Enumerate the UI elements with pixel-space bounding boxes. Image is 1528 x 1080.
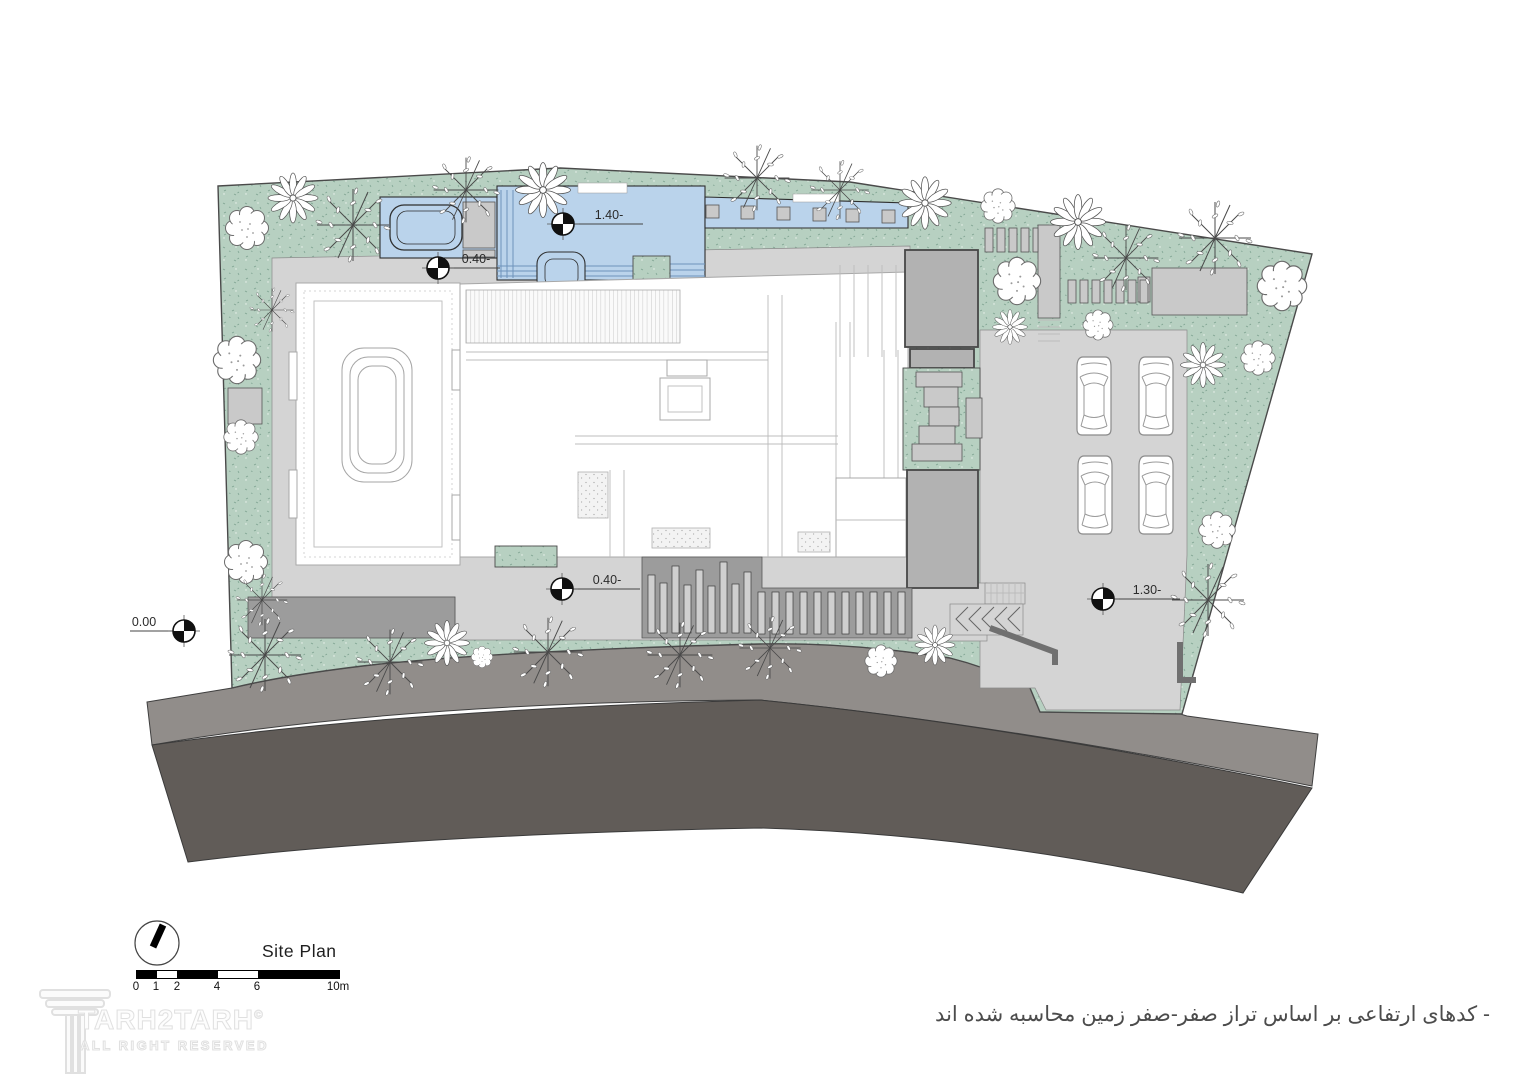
- left-garden-pad: [228, 388, 262, 424]
- tree: [213, 336, 260, 383]
- watermark-rights: ALL RIGHT RESERVED: [80, 1038, 269, 1053]
- elevation-label: 0.40-: [462, 252, 491, 266]
- scale-segment: [157, 971, 177, 978]
- yard-planter: [495, 546, 557, 567]
- tree: [471, 646, 493, 668]
- scale-segment: [137, 971, 157, 978]
- tree: [224, 420, 258, 454]
- tree: [226, 207, 269, 250]
- scale-ticks: 0 1 2 4 6 10m: [136, 981, 338, 995]
- garden-path: [1038, 225, 1060, 318]
- tree: [981, 189, 1015, 223]
- entry-ramp: [950, 604, 1023, 635]
- brand-text: TARH2TARH: [78, 1004, 254, 1035]
- watermark-brand: TARH2TARH©: [78, 1004, 264, 1036]
- wall-tab: [289, 352, 297, 400]
- scale-bar: [136, 970, 340, 979]
- tree: [1241, 341, 1275, 375]
- scale-tick: 10m: [327, 981, 349, 993]
- elevation-note: - کدهای ارتفاعی بر اساس تراز صفر-صفر زمی…: [935, 1002, 1490, 1027]
- scale-segment: [218, 971, 258, 978]
- scale-tick: 4: [214, 981, 220, 993]
- gravel-terrace: [578, 472, 608, 518]
- building-right-wing: [903, 250, 982, 588]
- gravel-terrace: [798, 532, 830, 552]
- scale-tick: 6: [254, 981, 260, 993]
- site-plan-drawing: 0.00 1.40- 0.40- 0.40- 1.30-: [0, 0, 1528, 1080]
- tree: [1083, 310, 1113, 340]
- drawing-title: Site Plan: [262, 941, 337, 962]
- wall-tab: [289, 470, 297, 518]
- car: [1139, 357, 1173, 435]
- roof-room: [836, 478, 906, 557]
- scale-segment: [177, 971, 218, 978]
- elevation-marker: 0.00: [130, 615, 200, 647]
- scale-segment: [258, 971, 339, 978]
- car: [1078, 456, 1112, 534]
- elevation-label: 1.30-: [1133, 583, 1162, 597]
- page: { "drawing": { "title": "Site Plan", "sc…: [0, 0, 1528, 1080]
- tree: [225, 541, 268, 584]
- car: [1077, 357, 1111, 435]
- pool-edge-notch: [578, 183, 627, 193]
- car: [1139, 456, 1173, 534]
- scale-tick: 2: [174, 981, 180, 993]
- scale-tick: 0: [133, 981, 139, 993]
- copyright-symbol: ©: [254, 1008, 264, 1022]
- elevation-label: 1.40-: [595, 208, 624, 222]
- roof-box: [667, 360, 707, 376]
- tree: [1199, 512, 1236, 549]
- skylight: [342, 348, 412, 482]
- scale-tick: 1: [153, 981, 159, 993]
- tree: [993, 257, 1040, 304]
- garden-structure: [1152, 268, 1247, 315]
- north-arrow: [132, 918, 182, 968]
- elevation-label: 0.00: [132, 615, 156, 629]
- ribbed-roof: [466, 290, 680, 343]
- tree: [865, 645, 897, 677]
- elevation-label: 0.40-: [593, 573, 622, 587]
- roof-box: [660, 378, 710, 420]
- wing-side-pad: [966, 398, 982, 438]
- tree: [1257, 261, 1306, 310]
- gravel-terrace: [652, 528, 710, 548]
